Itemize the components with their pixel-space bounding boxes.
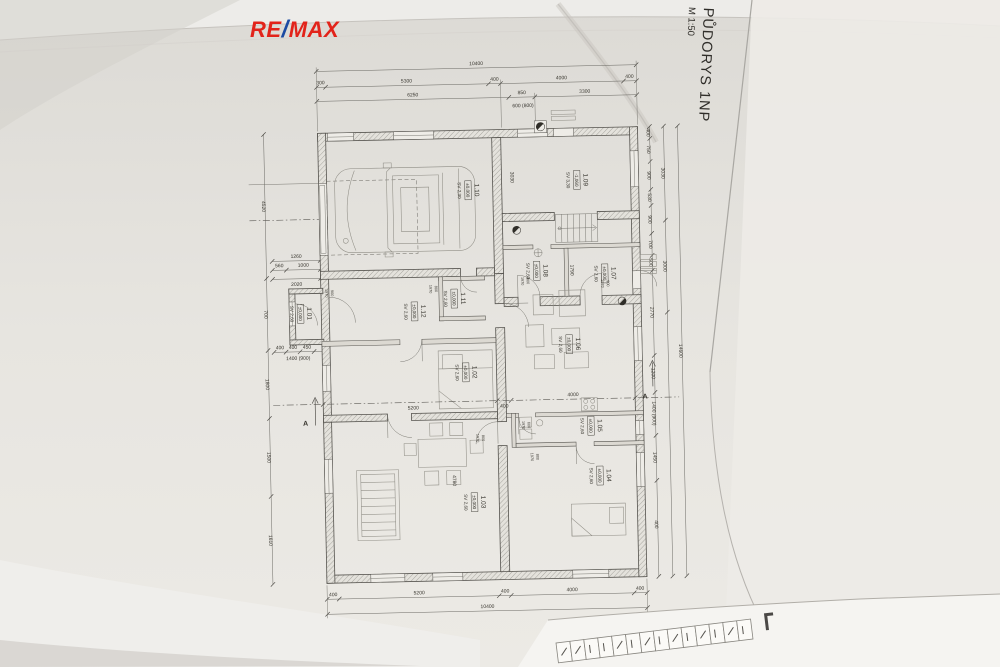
dim-text: 5200 [414, 590, 425, 596]
svg-text:1.02: 1.02 [470, 366, 477, 379]
garage-area [248, 161, 476, 260]
floor-plan-photo: RE/MAX PŮDORYS 1NP M 1:50 10400 300 5300… [0, 0, 1000, 667]
room-label-108: 1.08 ±0,000SV 2,60 [525, 261, 548, 280]
svg-text:1.09: 1.09 [581, 173, 588, 186]
room-label-104: 1.04 ±0,000SV 2,60 [589, 466, 612, 485]
svg-text:800: 800 [481, 435, 485, 441]
window [573, 569, 609, 578]
remax-logo: RE/MAX [250, 16, 339, 44]
dim-text: 750 [645, 145, 651, 154]
room-label-110: 1.10 ±0,000SV 2,30 [457, 181, 480, 200]
window [394, 131, 434, 140]
svg-text:±0,000: ±0,000 [602, 266, 607, 281]
door-label: 8001970 [428, 285, 438, 294]
svg-text:±0,000: ±0,000 [534, 264, 539, 279]
window [371, 574, 405, 583]
dim-text: 2770 [648, 307, 654, 318]
svg-text:±0,000: ±0,000 [412, 304, 417, 319]
dim-text: 400 [289, 345, 298, 351]
side-door-opening [632, 271, 640, 289]
boiler-symbol [534, 249, 542, 257]
svg-text:SV 2,60: SV 2,60 [589, 468, 594, 485]
svg-text:1.01: 1.01 [305, 307, 312, 320]
svg-text:1.06: 1.06 [574, 338, 581, 351]
svg-text:1.11: 1.11 [459, 292, 466, 305]
dim-text: 700 [647, 240, 653, 249]
door-label: 8001970 [475, 434, 485, 443]
dim-note: 1400 (900) [286, 356, 311, 363]
dim-note: 600 (800) [512, 103, 534, 109]
svg-text:1970: 1970 [520, 277, 524, 286]
dim-text: 6250 [407, 92, 418, 98]
svg-text:SV 2,60: SV 2,60 [580, 418, 585, 435]
dim-text: 4000 [567, 587, 578, 593]
dim-text: 700 [262, 310, 268, 319]
svg-text:1970: 1970 [475, 434, 479, 443]
dim-text: 400 [329, 592, 338, 598]
dim-text: 4520 [260, 201, 266, 212]
dim-text: 1450 [651, 452, 657, 463]
svg-text:SV 2,60: SV 2,60 [403, 303, 408, 320]
svg-text:1970: 1970 [530, 453, 534, 462]
svg-text:±0,000: ±0,000 [588, 419, 593, 434]
svg-text:SV 2,60: SV 2,60 [443, 291, 448, 308]
svg-text:600: 600 [527, 422, 531, 428]
dim-text: 1500 [265, 452, 271, 463]
room-label-111: 1.11 ±0,000SV 2,60 [443, 289, 466, 308]
entry-step [551, 116, 575, 121]
dim-text: 2020 [291, 282, 302, 288]
dim-text: 3000 [661, 261, 667, 272]
svg-text:±0,000: ±0,000 [298, 307, 303, 322]
dim-text: 400 [636, 586, 645, 592]
dim-chain-top: 10400 300 5300 400 4000 400 6250 850 330… [314, 58, 640, 132]
svg-text:1.07: 1.07 [609, 267, 616, 280]
dim-text: 1000 [298, 263, 309, 269]
section-marker-a-right: A [643, 394, 648, 401]
kitchen-stove [581, 398, 597, 411]
svg-text:SV 2,60: SV 2,60 [558, 336, 563, 353]
dim-text: 3030 [659, 168, 665, 179]
svg-text:1970: 1970 [428, 285, 432, 294]
svg-text:SV 2,60: SV 2,60 [463, 494, 468, 511]
staircase-attic [357, 470, 400, 541]
room-label-106: 1.06 ±0,000SV 2,60 [558, 334, 581, 353]
dim-text: 850 [517, 90, 526, 96]
paper-fold-bright-area [726, 0, 1000, 612]
dim-text: 400 [644, 128, 650, 137]
entry-step [551, 110, 575, 115]
dim-text: 400 [501, 588, 510, 594]
svg-text:1.04: 1.04 [605, 469, 612, 482]
svg-text:±0,000: ±0,000 [451, 292, 456, 307]
svg-text:SV 2,60: SV 2,60 [289, 306, 294, 323]
room-label-107: 1.07 ±0,000SV 2,60 [593, 264, 616, 283]
dim-text: 1400 (900) [650, 401, 657, 426]
dim-text: 300 [316, 80, 325, 86]
svg-text:1.03: 1.03 [479, 496, 486, 509]
svg-text:800: 800 [535, 454, 539, 460]
door-label: 6001970 [521, 421, 531, 430]
dim-text: 560 [275, 263, 284, 269]
dim-text: 5300 [401, 78, 412, 84]
svg-text:SV 2,30: SV 2,30 [457, 182, 462, 199]
svg-text:SV 3,30: SV 3,30 [565, 172, 570, 189]
entry-door-opening [553, 128, 573, 136]
svg-text:±0,000: ±0,000 [463, 365, 468, 380]
dim-text: 5200 [408, 405, 419, 411]
staircase-main [555, 214, 598, 243]
car-top-view [334, 161, 476, 258]
door-label: 8001970 [530, 453, 540, 462]
svg-text:1.12: 1.12 [419, 305, 426, 318]
floor-plan-drawing: 10400 300 5300 400 4000 400 6250 850 330… [246, 45, 718, 645]
furniture-dining [404, 422, 484, 486]
window [630, 151, 639, 187]
svg-text:1.05: 1.05 [596, 419, 603, 432]
dim-text: 1790 [568, 264, 574, 275]
dim-text: 14600 [677, 344, 683, 358]
svg-text:900: 900 [606, 280, 610, 286]
logo-slash: / [282, 16, 289, 43]
window [636, 421, 644, 435]
dim-text: 3030 [508, 172, 514, 183]
section-marker-a-left: A [303, 421, 308, 428]
room-label-109: 1.09 -1,060SV 3,30 [565, 170, 588, 189]
dim-text: 400 [625, 74, 634, 80]
svg-text:1.10: 1.10 [473, 184, 480, 197]
door-label: 9001970 [324, 289, 334, 298]
window [328, 133, 354, 142]
svg-text:1970: 1970 [521, 421, 525, 430]
svg-text:±0,000: ±0,000 [597, 468, 602, 483]
dim-text: 400 [500, 403, 509, 409]
dim-text: 400 [276, 345, 285, 351]
logo-max: MAX [289, 17, 339, 42]
window [322, 365, 331, 391]
svg-text:800: 800 [434, 286, 438, 292]
dim-text: 10400 [480, 604, 494, 610]
svg-text:SV 2,60: SV 2,60 [525, 263, 530, 280]
dim-text: 1610 [267, 535, 273, 546]
svg-text:-1,060: -1,060 [574, 173, 579, 187]
dim-text: 900 [645, 171, 651, 180]
dim-text: 4000 [556, 75, 567, 81]
dim-text: 10400 [469, 61, 483, 67]
room-label-105: 1.05 ±0,000SV 2,60 [580, 416, 603, 435]
room-label-101: 1.01 ±0,000SV 2,60 [289, 304, 312, 323]
svg-text:SV 2,60: SV 2,60 [593, 265, 598, 282]
dim-text: 4780 [451, 475, 457, 486]
bed-room104 [571, 503, 626, 536]
svg-text:±0,000: ±0,000 [566, 337, 571, 352]
dim-chain-bottom: 400 5200 400 4000 400 10400 [325, 579, 650, 619]
window [324, 459, 333, 493]
dim-text: 4000 [567, 392, 578, 398]
svg-text:1970: 1970 [324, 289, 328, 298]
window [634, 327, 643, 361]
room-label-102: 1.02 ±0,000SV 2,60 [454, 363, 477, 382]
window [636, 453, 645, 487]
window [433, 572, 463, 581]
dim-text: 3300 [579, 89, 590, 95]
room-label-112: 1.12 ±0,000SV 2,60 [403, 302, 426, 321]
dim-chain-right: 400 750 900 530 900 700 500 2770 1200 14… [644, 124, 689, 579]
svg-text:1.08: 1.08 [541, 264, 548, 277]
svg-text:900: 900 [330, 290, 334, 296]
svg-text:±0,000: ±0,000 [472, 495, 477, 510]
dim-text: 400 [490, 77, 499, 83]
room-label-103: 1.03 ±0,000SV 2,60 [463, 492, 486, 511]
dim-text: 450 [303, 345, 312, 351]
svg-text:SV 2,60: SV 2,60 [454, 364, 459, 381]
svg-text:±0,000: ±0,000 [465, 183, 470, 198]
dim-text: 900 [646, 215, 652, 224]
dim-text: 530 [646, 193, 652, 202]
dim-text: 1260 [290, 254, 301, 260]
dim-text: 400 [653, 520, 659, 529]
logo-re: RE [250, 17, 282, 42]
dim-text: 1800 [264, 379, 270, 390]
